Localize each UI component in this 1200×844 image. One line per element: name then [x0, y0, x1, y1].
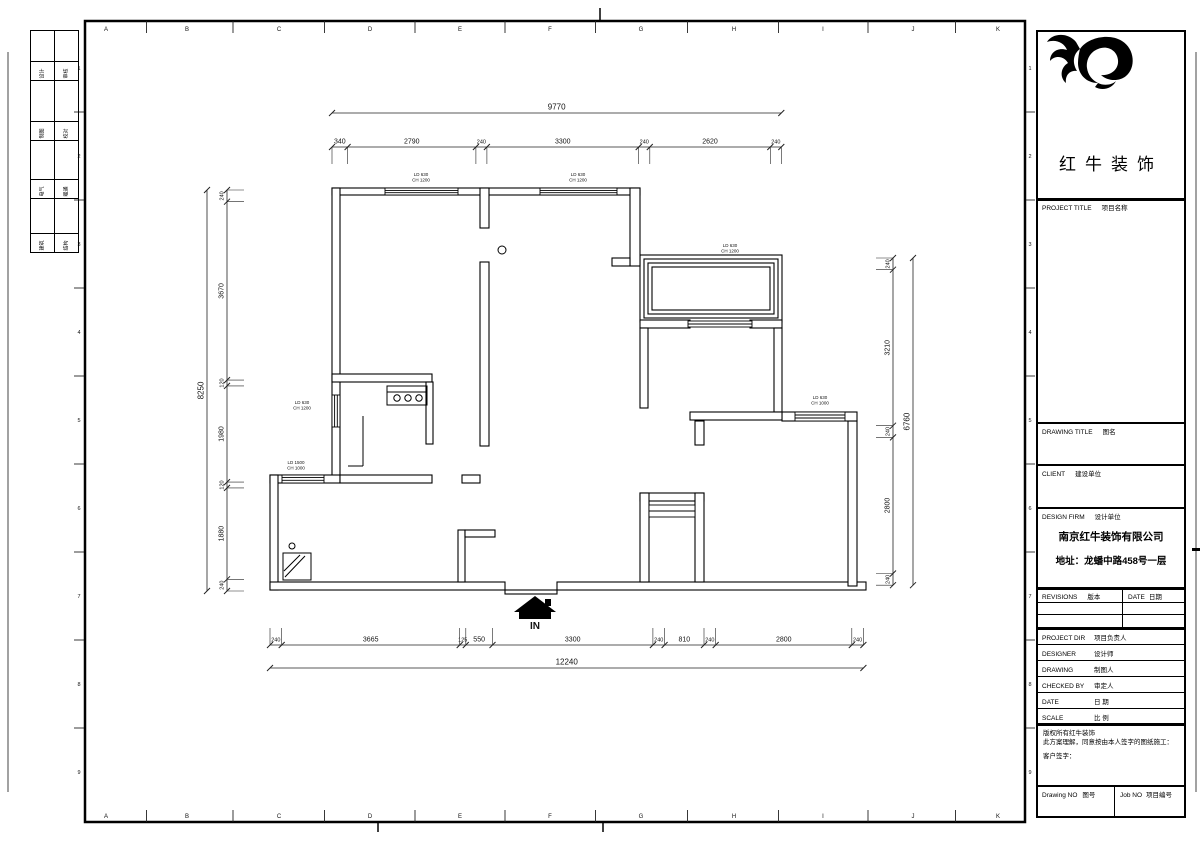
svg-text:810: 810	[678, 637, 690, 644]
svg-text:125: 125	[458, 638, 467, 644]
svg-text:5: 5	[1028, 418, 1031, 424]
project-dir-row: PROJECT DIR项目负责人	[1042, 632, 1182, 642]
divider	[1038, 676, 1184, 677]
client-label: CLIENT建设单位	[1042, 468, 1182, 478]
svg-text:240: 240	[271, 638, 280, 644]
svg-text:4: 4	[77, 330, 80, 336]
svg-text:7: 7	[1028, 594, 1031, 600]
svg-text:120: 120	[220, 378, 226, 387]
svg-text:J: J	[912, 27, 915, 33]
svg-text:I: I	[822, 814, 824, 820]
svg-text:8: 8	[77, 682, 80, 688]
date-row: DATE日 期	[1042, 696, 1182, 706]
copyright-line-2: 此方案理解，同意按由本人签字的图纸施工：	[1043, 736, 1181, 746]
floor-plan-walls	[270, 188, 866, 594]
floor-plan-canvas: 3402790240330024026202409770240366512555…	[0, 0, 1200, 844]
svg-text:12240: 12240	[556, 658, 579, 667]
svg-text:K: K	[996, 27, 1000, 33]
divider	[1038, 692, 1184, 693]
svg-text:LD 630: LD 630	[723, 243, 738, 248]
svg-text:2800: 2800	[885, 498, 892, 514]
svg-text:2800: 2800	[776, 637, 792, 644]
scale-row: SCALE比 例	[1042, 712, 1182, 722]
svg-text:240: 240	[853, 638, 862, 644]
svg-text:E: E	[458, 814, 462, 820]
drawing-title-label: DRAWING TITLE图名	[1042, 426, 1182, 436]
svg-text:F: F	[548, 27, 552, 33]
signoff-cell: 建筑	[39, 240, 46, 250]
svg-text:240: 240	[640, 140, 649, 146]
client-sign-label: 客户签字：	[1043, 750, 1181, 760]
designer-row: DESIGNER设计师	[1042, 648, 1182, 658]
drawing-sheet: 3402790240330024026202409770240366512555…	[0, 0, 1200, 844]
bull-logo-icon	[1038, 32, 1138, 106]
svg-text:CH 1000: CH 1000	[811, 401, 829, 406]
svg-text:3: 3	[1028, 242, 1031, 248]
door-pivot	[498, 246, 506, 254]
svg-text:8250: 8250	[197, 381, 206, 399]
svg-text:5: 5	[77, 418, 80, 424]
svg-text:3670: 3670	[219, 283, 226, 299]
sheet-edge-lines	[8, 52, 1196, 792]
bathroom-fixture	[283, 543, 311, 580]
signoff-cell: 设计	[39, 68, 46, 78]
svg-text:CH 1000: CH 1000	[287, 466, 305, 471]
svg-text:9: 9	[77, 770, 80, 776]
svg-text:1880: 1880	[219, 526, 226, 542]
svg-text:550: 550	[473, 637, 485, 644]
rev-date-label: DATE日期	[1128, 591, 1182, 601]
svg-text:4: 4	[1028, 330, 1031, 336]
svg-text:240: 240	[886, 575, 892, 584]
svg-text:6: 6	[1028, 506, 1031, 512]
divider	[1038, 602, 1184, 603]
divider	[1038, 507, 1184, 509]
svg-text:LD 630: LD 630	[414, 172, 429, 177]
svg-text:LD 630: LD 630	[813, 395, 828, 400]
svg-text:G: G	[639, 814, 644, 820]
signoff-cell: 审核	[63, 68, 70, 78]
svg-text:D: D	[368, 27, 373, 33]
kitchen-stove	[387, 386, 427, 405]
divider	[1038, 464, 1184, 466]
svg-text:240: 240	[886, 427, 892, 436]
divider	[1038, 198, 1184, 201]
design-firm-name: 南京红牛装饰有限公司	[1038, 529, 1184, 544]
svg-text:C: C	[277, 814, 282, 820]
svg-text:2620: 2620	[702, 139, 718, 146]
svg-text:CH 1200: CH 1200	[569, 178, 587, 183]
svg-text:A: A	[104, 27, 108, 33]
svg-text:C: C	[277, 27, 282, 33]
svg-text:LD 1500: LD 1500	[287, 460, 305, 465]
signoff-cell: 校对	[63, 128, 70, 138]
svg-text:I: I	[822, 27, 824, 33]
svg-text:7: 7	[77, 594, 80, 600]
svg-text:240: 240	[477, 140, 486, 146]
svg-text:G: G	[639, 27, 644, 33]
design-firm-address: 地址：龙蟠中路458号一层	[1038, 553, 1184, 567]
svg-text:B: B	[185, 27, 189, 33]
svg-text:9: 9	[1028, 770, 1031, 776]
signoff-cell: 电气	[39, 186, 46, 196]
svg-text:9770: 9770	[548, 103, 566, 112]
svg-text:D: D	[368, 814, 373, 820]
svg-text:LD 630: LD 630	[571, 172, 586, 177]
divider	[1114, 785, 1115, 818]
svg-text:CH 1200: CH 1200	[721, 249, 739, 254]
svg-text:240: 240	[705, 638, 714, 644]
svg-text:3300: 3300	[565, 637, 581, 644]
divider	[1038, 644, 1184, 645]
svg-text:1: 1	[1028, 66, 1031, 72]
project-title-label: PROJECT TITLE项目名称	[1042, 202, 1182, 212]
svg-text:120: 120	[220, 480, 226, 489]
divider	[1038, 708, 1184, 709]
signoff-table: 设计审核 制图校对 电气暖通 建筑结构	[30, 30, 79, 253]
signoff-cell: 暖通	[63, 186, 70, 196]
divider	[1038, 627, 1184, 630]
svg-text:6: 6	[77, 506, 80, 512]
divider	[1038, 660, 1184, 661]
drawing-row: DRAWING制图人	[1042, 664, 1182, 674]
svg-text:8: 8	[1028, 682, 1031, 688]
svg-text:CH 1200: CH 1200	[293, 406, 311, 411]
design-firm-label: DESIGN FIRM设计单位	[1042, 511, 1182, 521]
divider	[1122, 587, 1123, 627]
title-block: 红牛装饰 PROJECT TITLE项目名称 DRAWING TITLE图名 C…	[1036, 30, 1186, 818]
svg-text:IN: IN	[530, 621, 540, 632]
svg-text:6760: 6760	[903, 412, 912, 430]
svg-text:F: F	[548, 814, 552, 820]
signoff-cell: 制图	[39, 128, 46, 138]
job-no-label: Job NO项目编号	[1120, 789, 1182, 799]
svg-text:3300: 3300	[555, 139, 571, 146]
svg-text:240: 240	[220, 191, 226, 200]
company-name: 红牛装饰	[1038, 150, 1184, 175]
svg-text:240: 240	[220, 581, 226, 590]
svg-text:CH 1200: CH 1200	[412, 178, 430, 183]
signoff-cell: 结构	[63, 240, 70, 250]
svg-text:B: B	[185, 814, 189, 820]
divider	[1038, 785, 1184, 787]
window-symbols	[282, 188, 845, 517]
divider	[1038, 422, 1184, 424]
svg-text:340: 340	[334, 139, 346, 146]
entry-icon	[514, 596, 556, 619]
svg-text:2790: 2790	[404, 139, 420, 146]
svg-text:E: E	[458, 27, 462, 33]
svg-text:A: A	[104, 814, 108, 820]
svg-text:J: J	[912, 814, 915, 820]
svg-text:3210: 3210	[885, 340, 892, 356]
svg-text:H: H	[732, 814, 736, 820]
divider	[1038, 587, 1184, 590]
divider	[1038, 614, 1184, 615]
svg-text:2: 2	[1028, 154, 1031, 160]
svg-text:3665: 3665	[363, 637, 379, 644]
svg-text:240: 240	[654, 638, 663, 644]
checked-by-row: CHECKED BY审定人	[1042, 680, 1182, 690]
svg-text:H: H	[732, 27, 736, 33]
svg-text:1980: 1980	[219, 426, 226, 442]
svg-text:240: 240	[886, 259, 892, 268]
svg-text:240: 240	[771, 140, 780, 146]
svg-text:LD 630: LD 630	[295, 400, 310, 405]
divider	[1038, 723, 1184, 726]
svg-text:K: K	[996, 814, 1000, 820]
